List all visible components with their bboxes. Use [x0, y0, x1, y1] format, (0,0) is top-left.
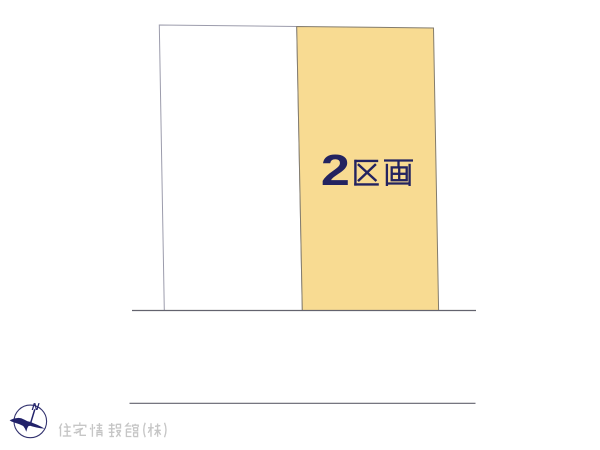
svg-text:2: 2: [321, 146, 350, 195]
